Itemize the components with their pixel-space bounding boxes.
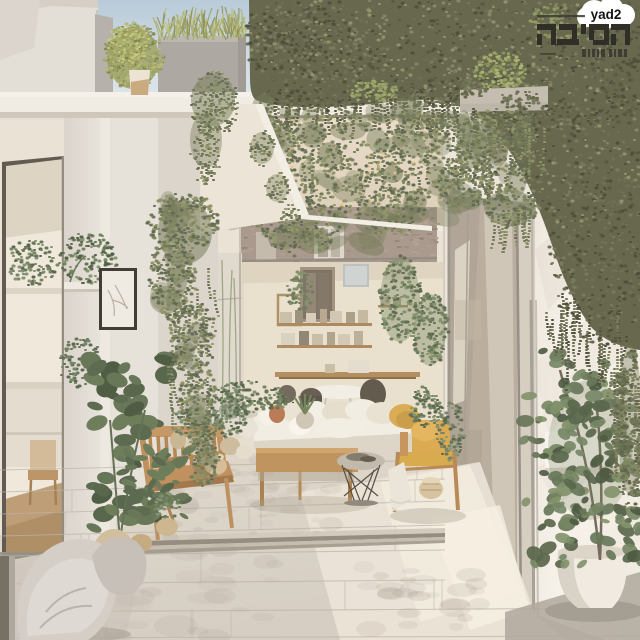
svg-text:yad2: yad2 xyxy=(591,7,622,22)
